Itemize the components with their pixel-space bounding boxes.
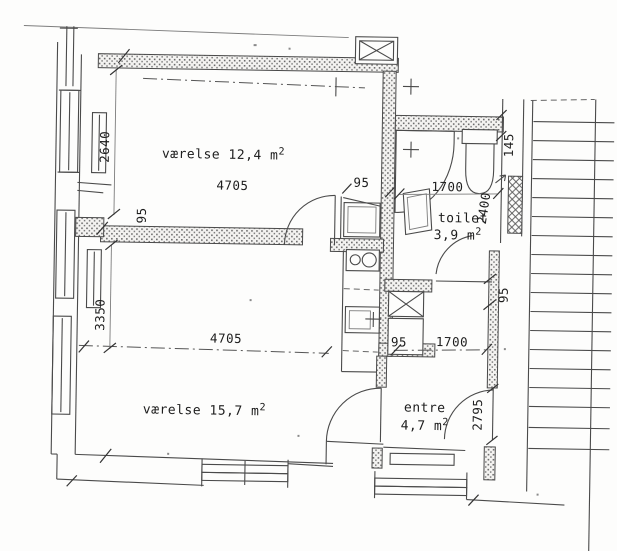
top-wall [98,54,398,73]
room15-entre-door [326,387,381,442]
stove [346,250,379,272]
room-label-entre: entre [404,401,446,417]
dim-2640: 2640 [97,131,113,163]
dim-line-2640 [114,69,116,215]
kitchen-bottom-line [341,372,376,373]
entrance-door [444,387,493,440]
party-wall-line [589,99,596,551]
entre-bottom-line [383,447,465,450]
dim-1700-top: 1700 [431,179,463,195]
left-corner-line [73,26,74,86]
tick-95-kitchen [342,184,351,194]
tick [493,188,503,199]
entre-door-pillar [484,447,496,480]
tick [67,475,77,486]
counter-line [343,351,378,353]
kitchen [338,197,383,373]
hatched-walls [72,48,525,480]
wc-toilet [461,129,497,194]
bottom-outer-line-right [466,500,564,506]
right-wall-lower [487,251,499,388]
eave-line [24,26,349,38]
centerline-cross-icon [403,78,419,94]
staircase [527,116,615,493]
bottom-windows [202,450,468,499]
room-area-toilet: 3,9 m2 [434,226,482,244]
room-label-vaerelse-12: værelse 12,4 m2 [162,145,285,164]
dim-4705-bottom: 4705 [210,330,242,346]
dim-3350: 3350 [92,299,108,331]
niche-left-line [341,197,342,239]
floor-plan-drawing: værelse 12,4 m2 4705 værelse 15,7 m2 toi… [0,0,617,551]
centerline-top [143,78,365,87]
door-threshold [326,441,383,444]
dim-95-right: 95 [496,287,511,303]
tick [79,340,89,352]
shaft-top [355,37,397,65]
window-bottom-1 [202,458,288,487]
bottom-pillar [372,448,382,468]
counter-line [344,289,379,291]
dim-2400: 2400 [474,191,494,225]
corner-dashed-line [531,98,595,101]
shaft-top-wall [385,279,432,292]
floor-plan-scan: værelse 12,4 m2 4705 værelse 15,7 m2 toi… [0,0,617,551]
left-corner-line [66,26,67,86]
sink [345,307,381,334]
dim-145: 145 [501,133,516,157]
dim-line-3350 [110,245,112,349]
toilet-door-leaf-box [403,188,433,234]
dim-2795: 2795 [470,399,486,431]
kitchen-left-line [341,251,343,372]
dim-1700-bottom: 1700 [436,334,468,350]
bottom-inner-line [75,454,333,463]
dim-95-kitchen: 95 [353,175,369,190]
room-area-entre: 4,7 m2 [401,416,449,434]
window-bottom-2 [375,453,468,499]
stair-treads [528,122,614,450]
room-label-vaerelse-15: værelse 15,7 m2 [143,400,266,419]
dim-line-4705 [79,345,329,353]
dim-95-shaft: 95 [391,334,407,349]
wall-stub [77,182,111,185]
room-divider-wall [100,226,302,245]
tick [322,346,332,357]
stair-stringer [527,116,533,492]
tick-2795 [486,436,497,445]
dim-4705-top: 4705 [216,178,248,194]
crosshatched-wall [508,176,523,233]
wall-stub [77,190,103,192]
bottom-outer-line [57,479,204,485]
left-wall-block [76,217,104,236]
cabinet [343,198,381,238]
dim-95-left: 95 [134,207,149,223]
door-stub-wall [376,356,386,387]
